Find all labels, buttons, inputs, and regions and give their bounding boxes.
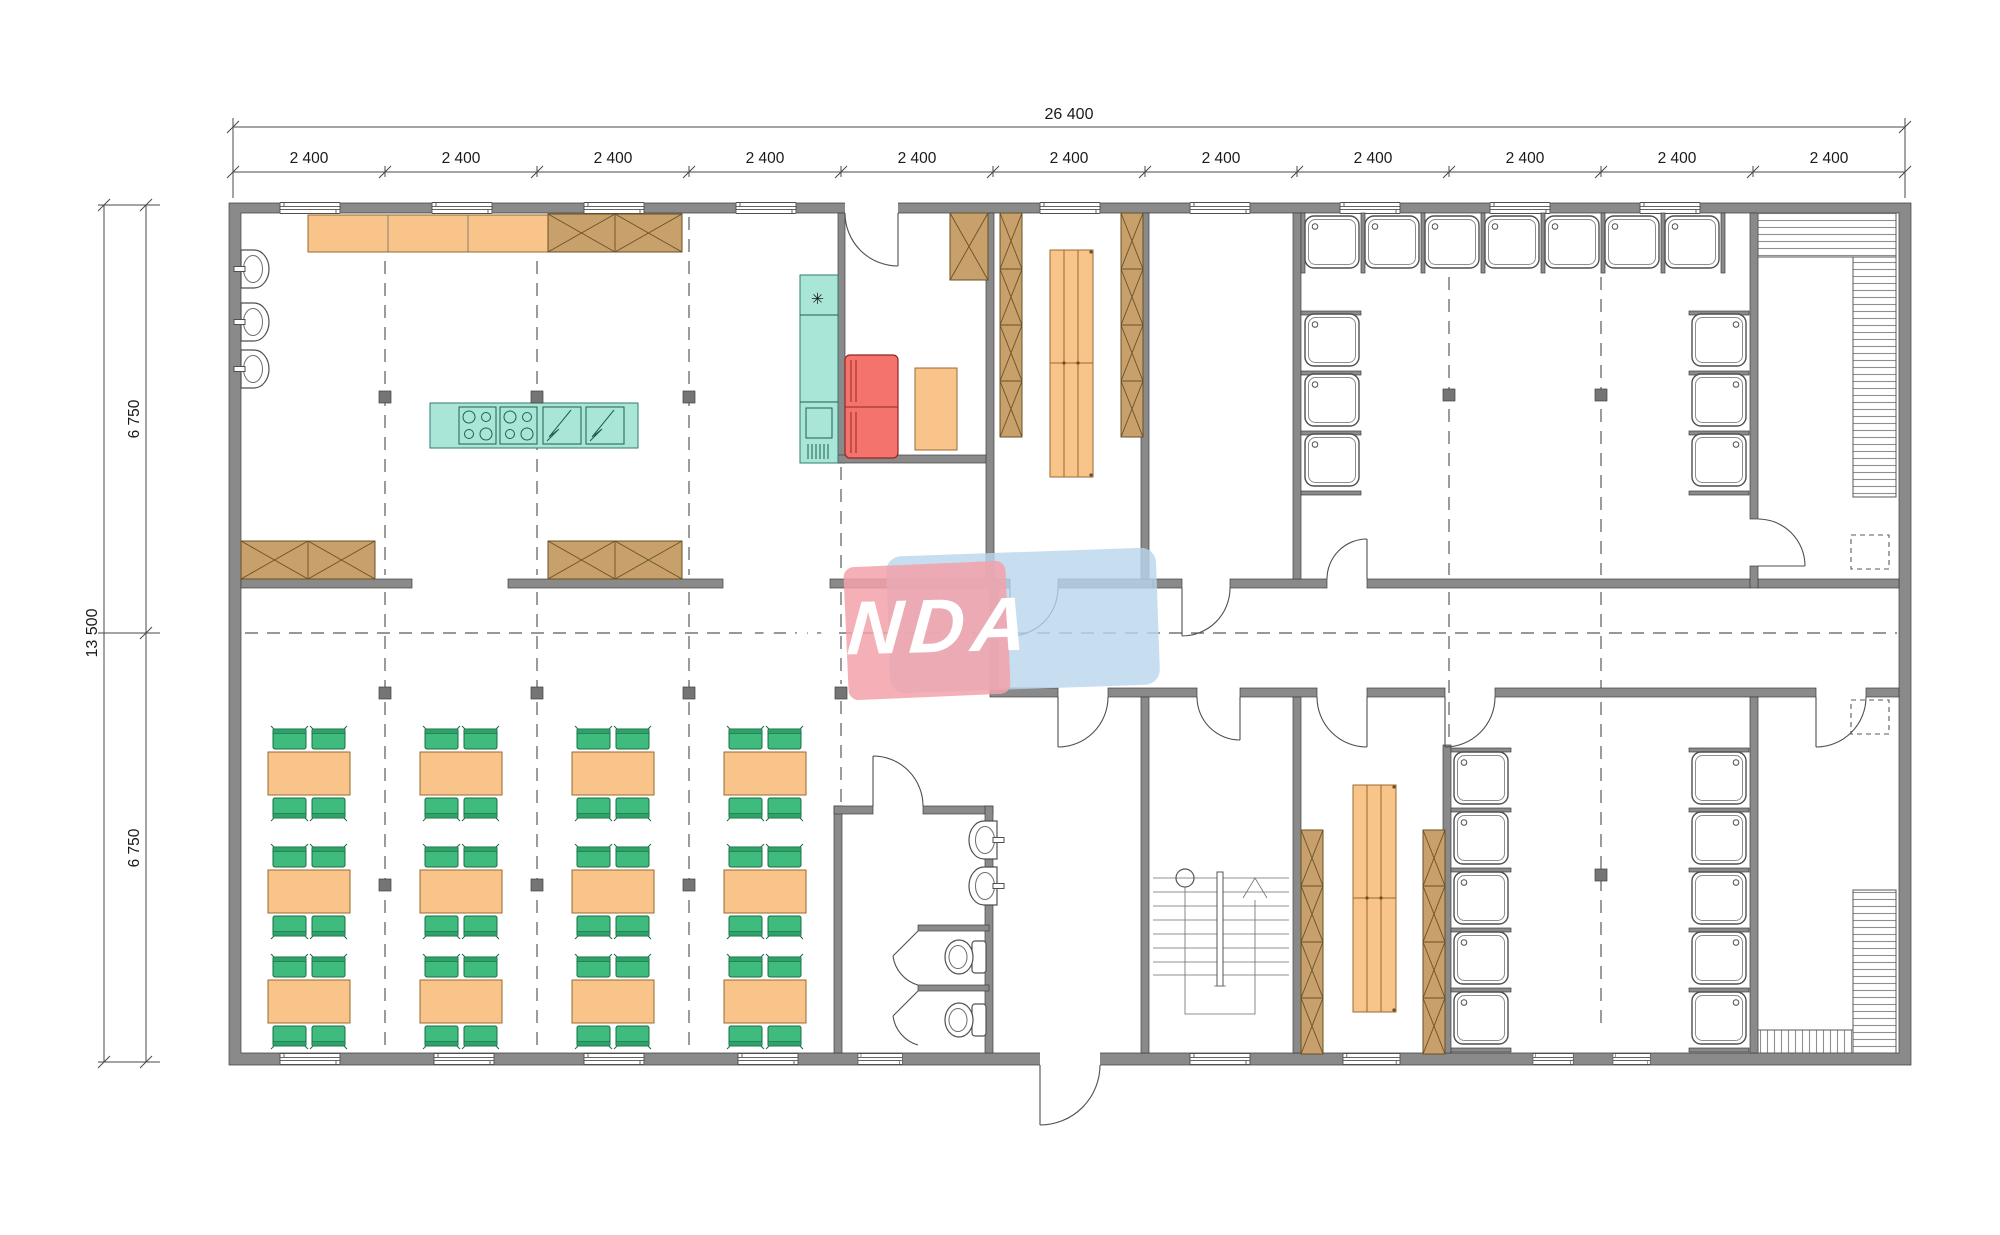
door-changing [1317,697,1367,747]
window-icon [432,203,492,214]
sink-icon [969,821,1004,859]
window-icon [736,203,796,214]
dining-table [268,726,350,821]
bay-dimension-label: 2 400 [594,150,633,167]
door-shower-bottom [1445,697,1495,747]
pantry-room [845,213,988,458]
bench-icon [1050,250,1093,477]
shower-room-bottom [1451,748,1749,1052]
shower-stall [1692,812,1746,864]
dining-table [724,844,806,939]
dining-table [420,954,502,1049]
bay-dimension-label: 2 400 [898,150,937,167]
floor-hatch [1851,535,1889,569]
bay-dimension-label: 2 400 [746,150,785,167]
bay-dimension-label: 2 400 [1810,150,1849,167]
shower-stall [1665,216,1719,268]
toilet-icon [945,1003,986,1037]
shower-stall [1454,992,1508,1044]
shower-stall [1692,932,1746,984]
dining-table [572,726,654,821]
window-icon [1190,1054,1250,1065]
kitchen-island [430,403,638,448]
door-wc [873,756,923,806]
sauna-bench [1758,1030,1853,1053]
crate-cabinet-icon [548,214,682,252]
shower-stall [1454,812,1508,864]
dining-table [268,844,350,939]
dimension-top: 26 400 2 400 2 400 2 400 2 400 2 400 2 4… [227,106,1911,198]
bay-dimension-label: 2 400 [1354,150,1393,167]
total-width-label: 26 400 [1045,106,1094,123]
storage-room [1000,213,1143,477]
shower-stall [1305,374,1359,426]
stairwell-wall [1293,697,1301,1053]
sauna-bench [1853,257,1896,497]
window-icon [280,203,340,214]
toilet-icon [945,940,986,974]
bay-dimension-label: 2 400 [442,150,481,167]
total-height-label: 13 500 [84,608,101,657]
shower-stall [1692,434,1746,486]
stair-up-arrow [1243,878,1267,898]
shower-stall [1454,872,1508,924]
dining-table [724,726,806,821]
shower-stall [1692,872,1746,924]
half-height-label: 6 750 [126,399,143,438]
window-icon [434,1054,494,1065]
window-icon [584,203,644,214]
bench-icon [1353,785,1396,1012]
crate-cabinet-icon [241,541,375,579]
lattice-rack-icon [1121,213,1143,437]
lattice-rack-icon [1000,213,1022,437]
stall-door [893,991,918,1045]
dining-table [268,954,350,1049]
stairwell-wall [1141,697,1149,1053]
floor-hatch [1851,700,1889,734]
window-icon [584,1054,644,1065]
bay-dimension-label: 2 400 [1050,150,1089,167]
shower-stall [1692,374,1746,426]
door-shower-top [1327,539,1367,579]
shower-stall [1425,216,1479,268]
shower-stall [1692,752,1746,804]
shower-stall [1454,932,1508,984]
shower-stall [1692,992,1746,1044]
door-pantry [845,213,898,266]
door-room [1182,588,1230,636]
dining-table [572,844,654,939]
window-icon [1640,203,1700,214]
dining-table [724,954,806,1049]
window-icon [1040,203,1100,214]
shower-stall [1305,216,1359,268]
half-height-label: 6 750 [126,828,143,867]
door-sauna-top [1758,519,1805,566]
stall-door [893,931,918,985]
hanging-cabinet [950,213,988,280]
stairs [1153,869,1289,1014]
door-sauna-bottom [1816,697,1866,747]
pantry-left-wall [838,213,845,463]
bay-dimension-label: 2 400 [290,150,329,167]
window-icon [1613,1054,1650,1065]
changing-room [1301,785,1445,1054]
wc-left-wall [834,806,842,1053]
window-icon [1190,203,1250,214]
bay-dimension-label: 2 400 [1202,150,1241,167]
sauna-bottom [1758,700,1896,1053]
shower-stall [1365,216,1419,268]
dimension-left: 13 500 6 750 6 750 [84,199,160,1068]
window-icon [1343,1054,1400,1065]
shower-stall [1545,216,1599,268]
window-icon [1490,203,1550,214]
lattice-rack-icon [1423,830,1445,1054]
floor-plan: ✳ [0,0,2000,1235]
watermark-text: VANDA [730,582,1037,675]
shower-stall [1305,314,1359,366]
shower-room-top [1301,213,1749,495]
lattice-rack-icon [1301,830,1323,1054]
freezer-cabinet: ✳ [800,275,838,463]
shower-stall [1305,434,1359,486]
shower-stall [1485,216,1539,268]
sink-icon [969,867,1004,905]
window-icon [1533,1054,1573,1065]
dining-table [420,726,502,821]
sauna-bench [1853,890,1896,1053]
crate-cabinet-icon [548,541,682,579]
window-icon [1340,203,1400,214]
door-stairwell [1197,697,1240,740]
dining-table [420,844,502,939]
pantry-table [915,368,957,450]
window-icon [738,1054,798,1065]
window-icon [280,1054,340,1065]
door-entrance [1040,1065,1100,1125]
bay-dimension-label: 2 400 [1506,150,1545,167]
door-lobby [1058,697,1108,747]
sauna-top [1758,213,1896,569]
shower-stall [1454,752,1508,804]
bay-dimension-label: 2 400 [1658,150,1697,167]
sauna-bench [1758,213,1896,257]
dining-table [572,954,654,1049]
shower-stall [1692,314,1746,366]
kitchen-counter [308,215,548,252]
watermark: VANDA [730,547,1160,700]
freezer-icon: ✳ [811,291,824,308]
shower-stall [1605,216,1659,268]
fridge [845,355,898,458]
window-icon [858,1054,902,1065]
